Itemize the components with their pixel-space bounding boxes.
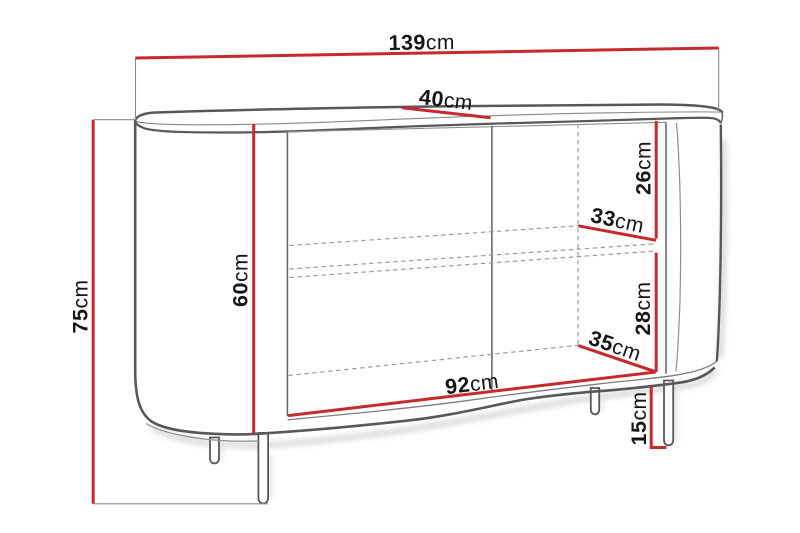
svg-text:28cm: 28cm	[631, 282, 655, 336]
svg-text:75cm: 75cm	[68, 280, 92, 334]
svg-text:15cm: 15cm	[627, 392, 651, 446]
svg-text:26cm: 26cm	[632, 141, 656, 195]
svg-text:60cm: 60cm	[229, 253, 253, 307]
svg-text:92cm: 92cm	[444, 369, 500, 399]
svg-text:139cm: 139cm	[388, 30, 455, 55]
